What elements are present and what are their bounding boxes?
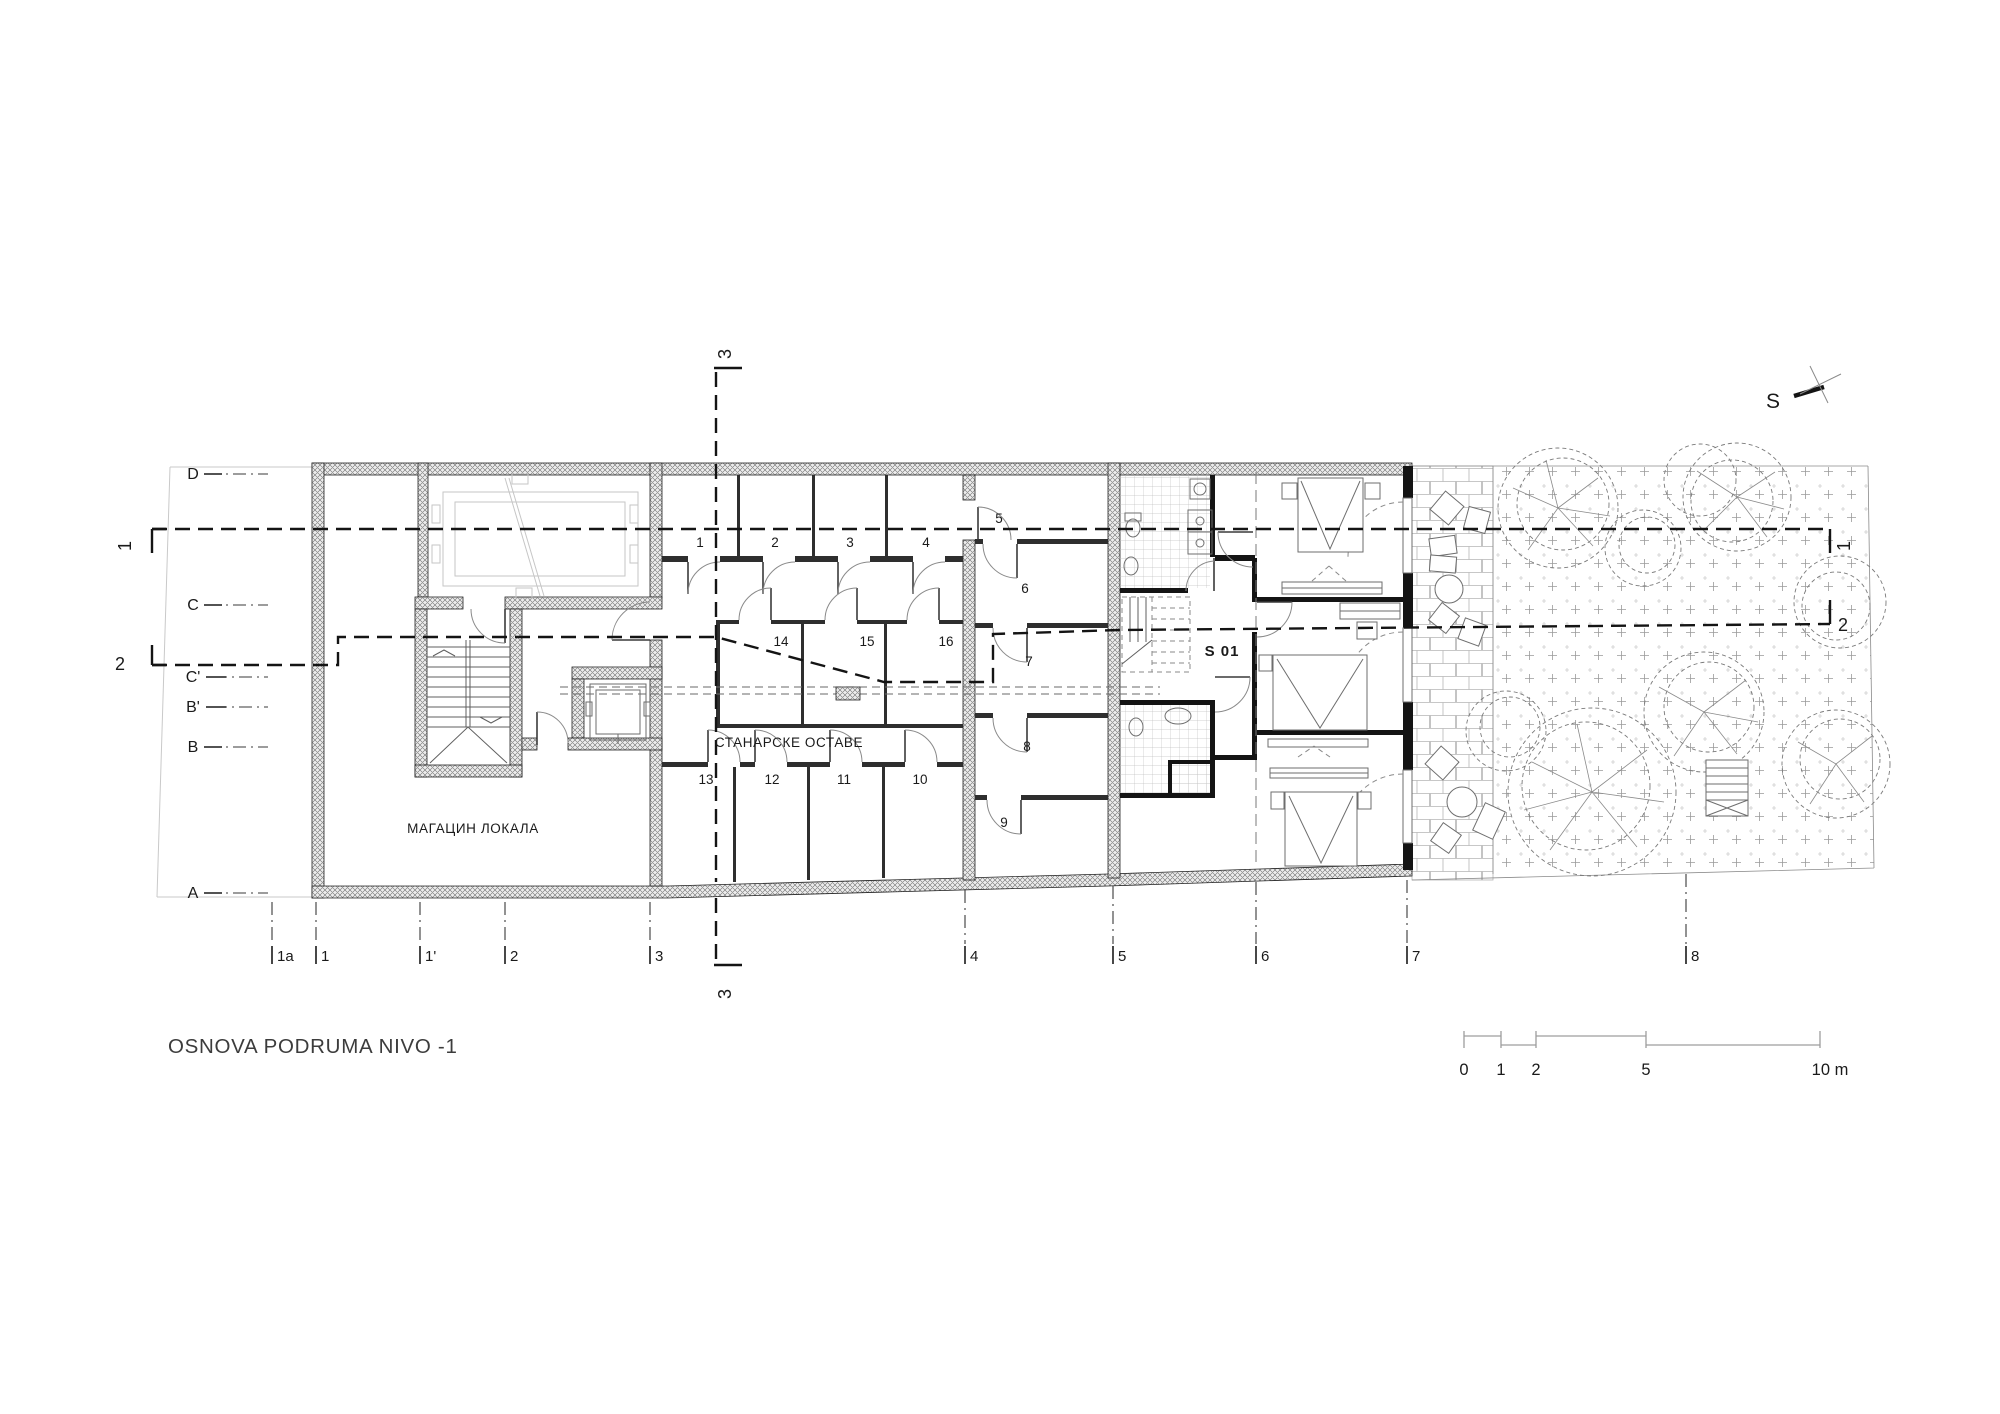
scale-1: 1 <box>1496 1061 1505 1079</box>
room-number-12: 12 <box>764 772 779 787</box>
room-number-3: 3 <box>846 535 854 550</box>
warehouse-label: МАГАЦИН ЛОКАЛА <box>407 821 539 836</box>
room-number-2: 2 <box>771 535 779 550</box>
scale-2: 2 <box>1531 1061 1540 1079</box>
room-number-9: 9 <box>1000 815 1008 830</box>
storage-partitions <box>662 475 1108 882</box>
grid-row-D: D <box>187 466 199 483</box>
room-number-14: 14 <box>773 634 789 649</box>
grid-row-C: C <box>187 597 199 614</box>
section-3-bottom: 3 <box>715 989 735 999</box>
grid-col-5: 5 <box>1118 948 1126 965</box>
room-number-6: 6 <box>1021 581 1029 596</box>
apartment <box>1120 466 1413 870</box>
north-arrow: S <box>1766 366 1841 413</box>
room-number-15: 15 <box>859 634 874 649</box>
tenant-storage-label: СТАНАРСКЕ ОСТАВЕ <box>715 735 863 750</box>
apartment-label: S 01 <box>1205 643 1240 660</box>
grid-col-2: 2 <box>510 948 518 965</box>
grid-col-7: 7 <box>1412 948 1420 965</box>
room-number-10: 10 <box>912 772 927 787</box>
section-1-left: 1 <box>115 541 135 551</box>
grid-col-3: 3 <box>655 948 663 965</box>
machine-room-equipment <box>432 474 638 598</box>
room-number-5: 5 <box>995 511 1003 526</box>
elevator <box>586 684 650 744</box>
grid-row-B: B <box>188 739 199 756</box>
grid-col-1: 1 <box>321 948 329 965</box>
drawing-page: D C C' B' B A 1a 1 1' 2 3 4 5 6 7 8 3 3 … <box>0 0 2000 1414</box>
grid-row-A: A <box>188 885 199 902</box>
scale-bar: 0 1 2 5 10 m <box>1459 1031 1848 1079</box>
floor-plan-svg: D C C' B' B A 1a 1 1' 2 3 4 5 6 7 8 3 3 … <box>0 0 2000 1414</box>
section-3-top: 3 <box>715 349 735 359</box>
garden-bench <box>1706 760 1748 816</box>
scale-5: 5 <box>1641 1061 1650 1079</box>
room-number-11: 11 <box>837 772 851 787</box>
grid-col-4: 4 <box>970 948 978 965</box>
garden <box>1412 443 1890 880</box>
north-label: S <box>1766 390 1780 413</box>
section-2-left: 2 <box>115 654 125 674</box>
grid-col-1a: 1a <box>277 948 294 965</box>
lot-boundary <box>157 467 312 897</box>
grid-row-B1: B' <box>186 699 200 716</box>
bedroom-3-furniture <box>1270 768 1371 866</box>
room-number-4: 4 <box>922 535 930 550</box>
drawing-title: OSNOVA PODRUMA NIVO -1 <box>168 1035 458 1058</box>
room-number-7: 7 <box>1025 654 1033 669</box>
shower-floor <box>1172 764 1210 793</box>
grid-row-C1: C' <box>186 669 201 686</box>
apartment-stair <box>1122 597 1190 672</box>
scale-10m: 10 m <box>1812 1061 1849 1079</box>
grid-col-6: 6 <box>1261 948 1269 965</box>
room-number-13: 13 <box>698 772 713 787</box>
grid-col-8: 8 <box>1691 948 1699 965</box>
room-number-1: 1 <box>696 535 704 550</box>
section-2-right: 2 <box>1838 615 1848 635</box>
bedroom-1-furniture <box>1282 478 1382 594</box>
section-1-right: 1 <box>1834 541 1854 551</box>
scale-0: 0 <box>1459 1061 1468 1079</box>
room-number-8: 8 <box>1023 739 1031 754</box>
room-number-16: 16 <box>938 634 953 649</box>
grid-col-1p: 1' <box>425 948 436 965</box>
stairwell <box>427 640 510 763</box>
